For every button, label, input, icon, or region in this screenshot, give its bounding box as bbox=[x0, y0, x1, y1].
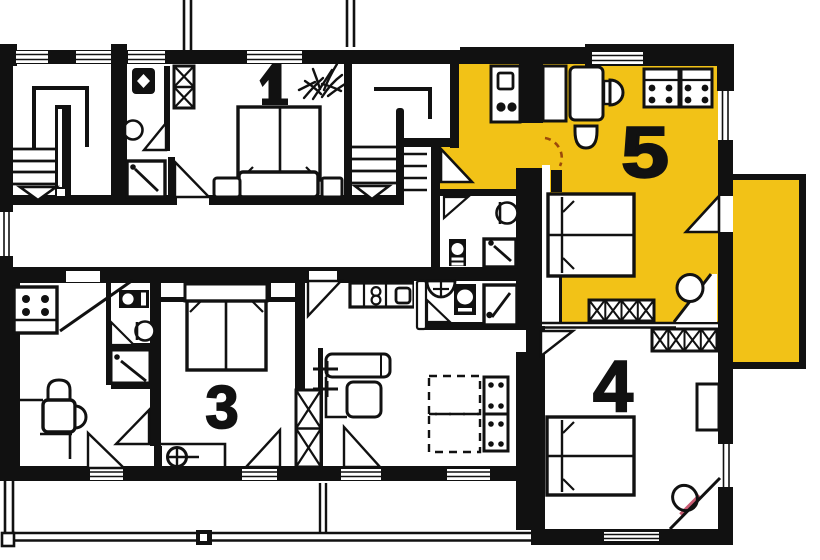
svg-text:3: 3 bbox=[205, 374, 238, 441]
svg-text:5: 5 bbox=[621, 113, 668, 193]
svg-text:4: 4 bbox=[593, 347, 633, 427]
